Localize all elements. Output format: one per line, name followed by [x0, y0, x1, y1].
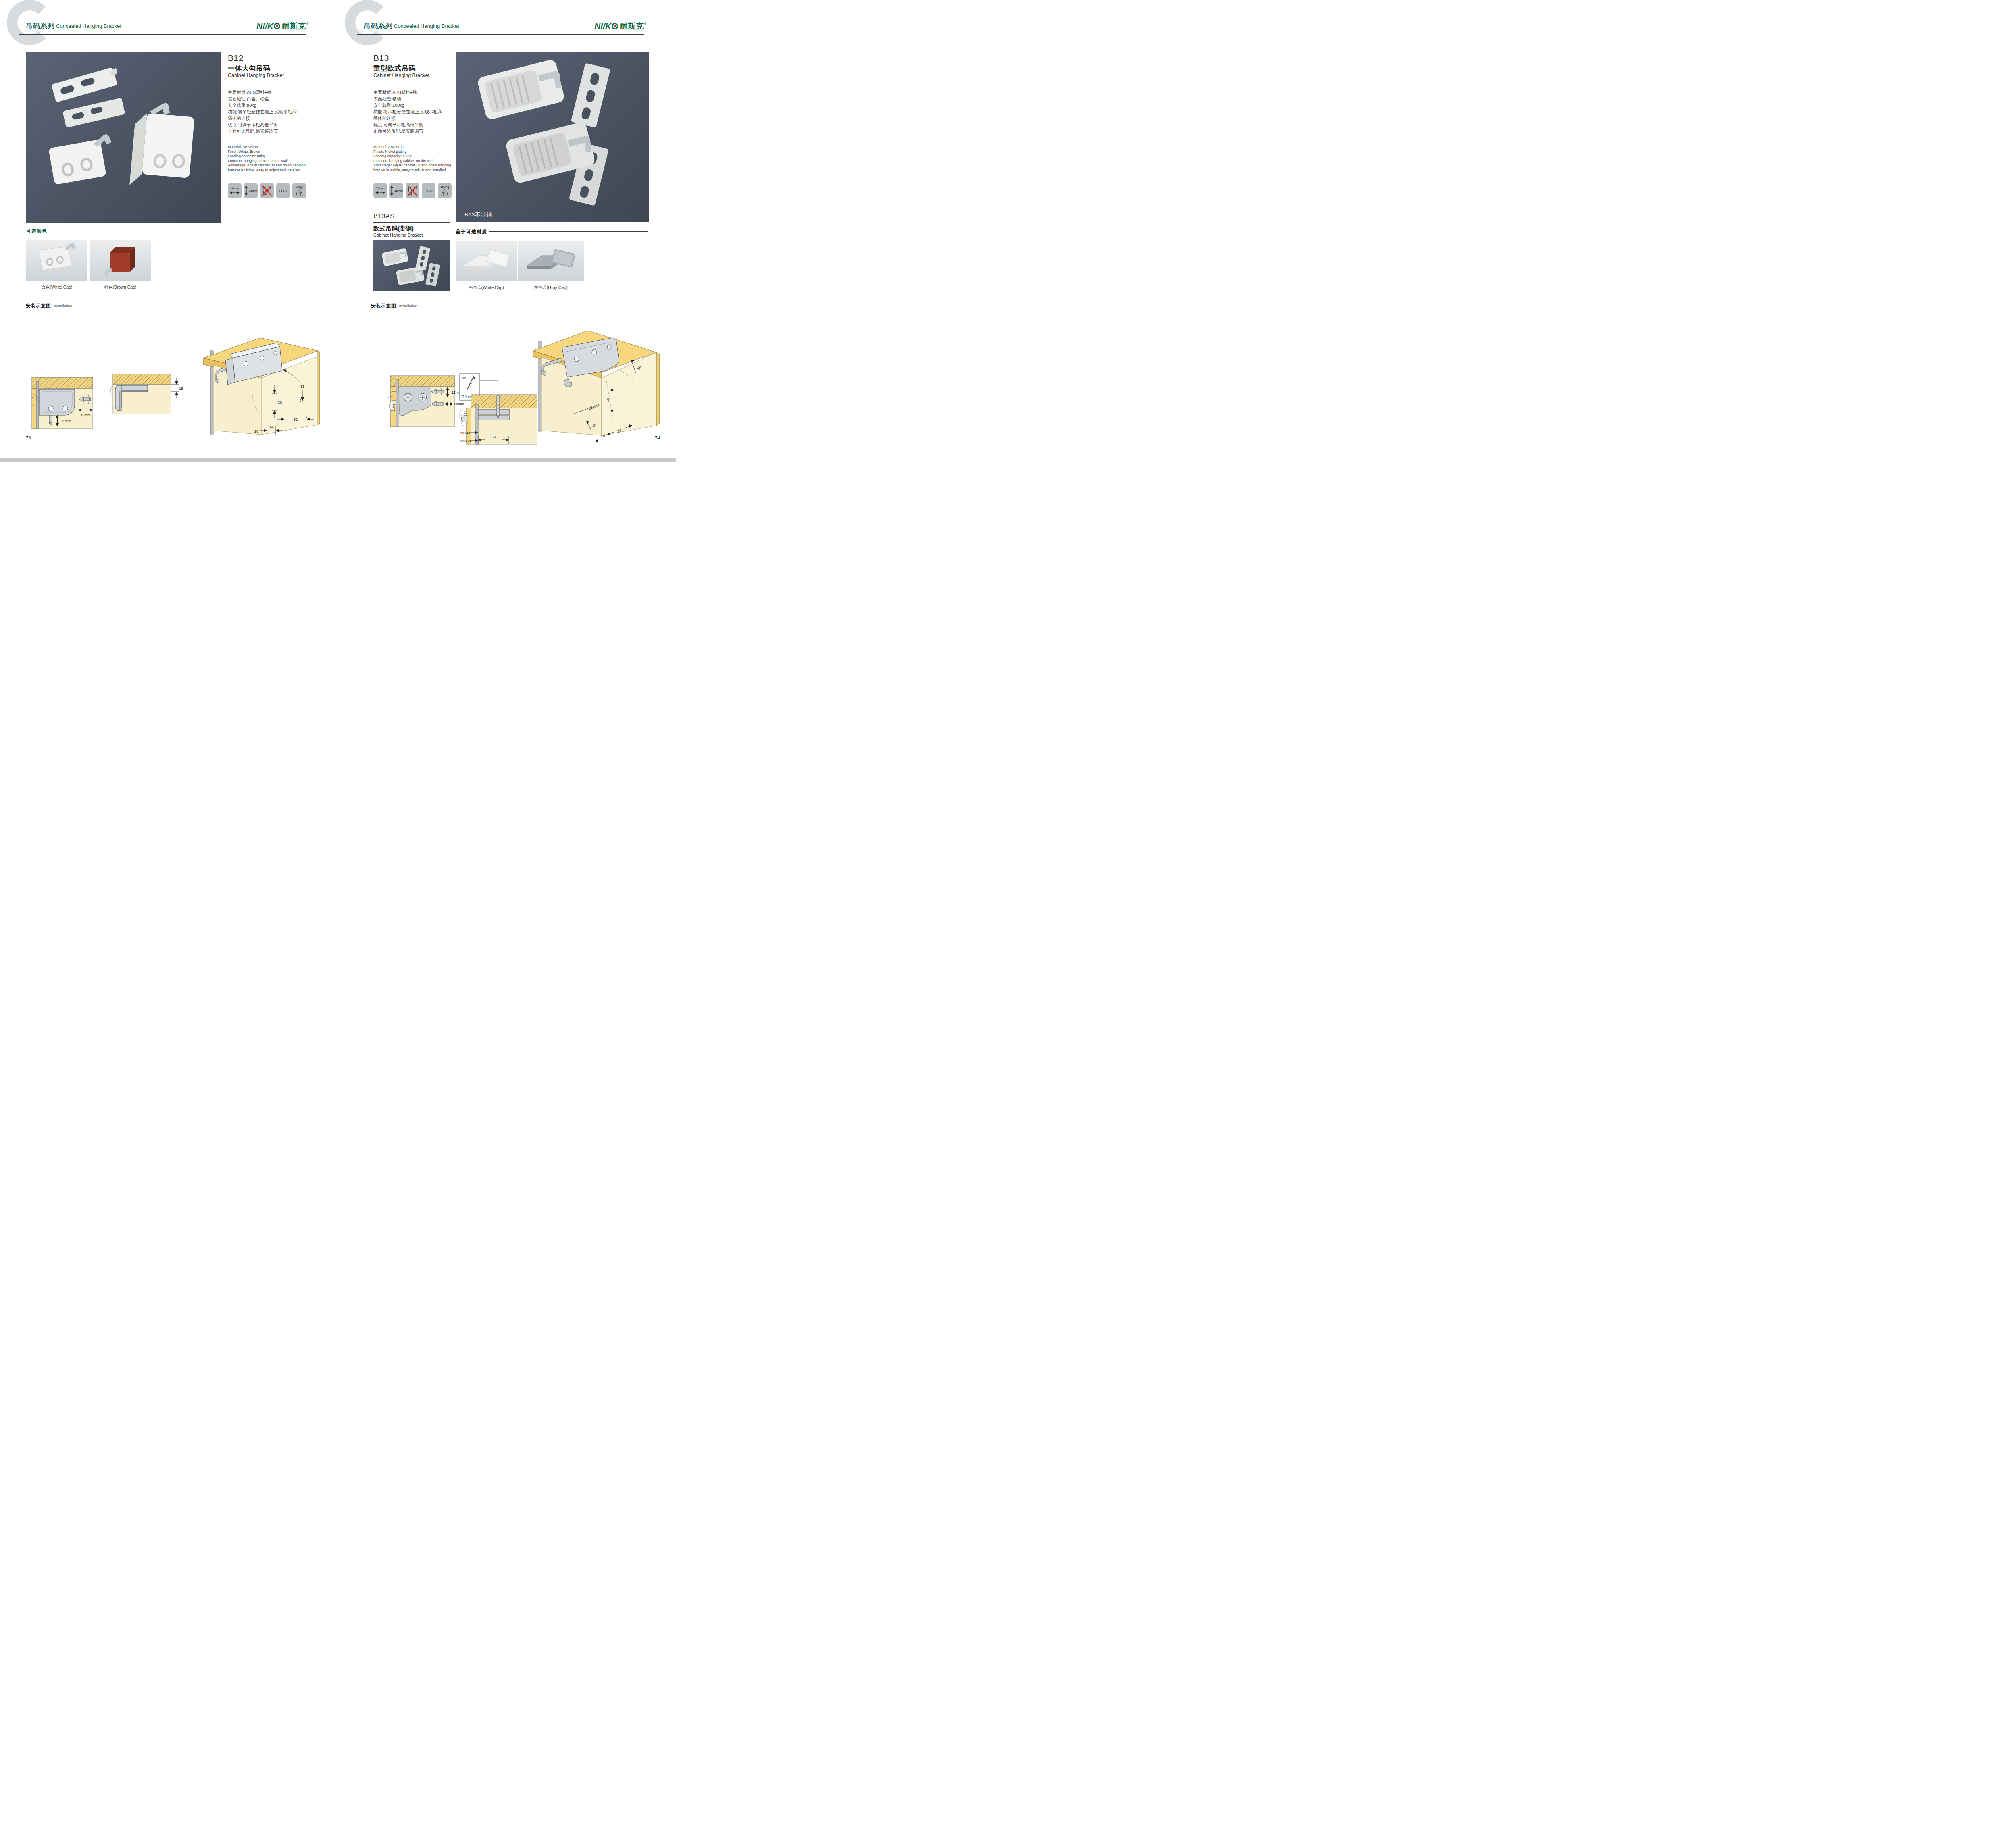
install-diagram-b12-section: 16mm 15mm	[31, 369, 107, 430]
sub-product-name-en: Cabinet Hanging Brcaket	[373, 233, 423, 237]
logo-cn: 耐斯克	[282, 21, 306, 31]
spec-line: 正面可见吊码,易安装调节	[228, 128, 297, 134]
registered-mark: ®	[306, 22, 308, 25]
dim-label: 18	[179, 387, 183, 391]
colors-section-title: 可选颜色	[26, 228, 47, 235]
spec-line: 功能:将吊柜悬挂在墙上,实现吊柜和	[373, 108, 442, 115]
product-photo-b12	[26, 52, 221, 223]
specs-en: Material: ABS+iron Finish: Nickel platin…	[373, 145, 451, 173]
no-drill-icon	[262, 185, 272, 196]
spec-line: Loading capacity: 80kg	[228, 154, 306, 159]
header-divider	[391, 22, 391, 29]
product-name-cn: 一体大勾吊码	[228, 64, 270, 73]
logo-red-dot	[276, 25, 278, 27]
page-left: 吊码系列 Concealed Hanging Bracket NI/K 耐斯克 …	[0, 0, 338, 462]
width-arrow-icon	[229, 191, 240, 195]
installation-title-en: Installation	[399, 304, 417, 308]
dim-label: 32	[294, 418, 298, 422]
spec-line: 功能:将吊柜悬挂在墙上,实现吊柜和	[228, 108, 297, 115]
spec-line: 表面处理:白色、棕色	[228, 96, 297, 102]
height-arrow-icon	[390, 185, 394, 196]
photo-label-b13: B13不带销	[464, 211, 492, 218]
swatch-white-cap	[26, 240, 87, 281]
feature-icons: 16mm 15mm LGA 8	[228, 183, 306, 198]
catalog-spread: 吊码系列 Concealed Hanging Bracket NI/K 耐斯克 …	[0, 0, 676, 462]
feature-icons: 20mm 15mm LGA 1	[373, 183, 452, 198]
caption-white-cover: 白色盖(White Cap)	[456, 285, 517, 291]
sub-product-rule	[373, 222, 450, 223]
b13-photo-illustration	[456, 52, 649, 222]
dim-label: MIN.15	[460, 431, 470, 435]
installation-title-cn: 安装示意图	[26, 303, 51, 308]
no-drill-icon	[408, 185, 417, 196]
icon-tile-no-drill	[260, 183, 274, 198]
lga-label: LGA	[279, 189, 287, 193]
icon-tile-cert: LGA	[276, 183, 290, 198]
swatch-gray-cover	[518, 241, 584, 281]
installation-title-cn: 安装示意图	[371, 303, 396, 308]
sub-product-name-cn: 欧式吊码(带销)	[373, 225, 414, 233]
section-divider	[357, 297, 648, 297]
height-arrow-icon	[244, 185, 248, 196]
icon-tile-height: 15mm	[244, 183, 258, 198]
height-label: 15mm	[249, 189, 257, 193]
dim-label: 16mm	[80, 413, 90, 417]
icon-tile-height: 15mm	[389, 183, 403, 198]
series-title-en: Concealed Hanging Bracket	[56, 23, 121, 29]
install-diagram-b13-perspective: 16 40 RMAX4 19 18 32	[527, 327, 660, 446]
header-rule	[19, 34, 306, 35]
spec-line: 墙体的连接	[373, 115, 442, 121]
brand-logo: NI/K 耐斯克 ®	[594, 21, 646, 31]
spec-line: bracket is visible, easy to adjust and i…	[373, 168, 451, 173]
spec-line: 正面可见吊码,易安装调节	[373, 128, 442, 134]
white-cap-illustration	[26, 240, 87, 281]
weight-icon	[440, 189, 449, 196]
dim-label: 33	[300, 385, 304, 389]
spec-line: 表面处理:镀镍	[373, 96, 442, 102]
spec-line: Material: ABS+iron	[228, 145, 306, 150]
section-divider	[17, 297, 306, 297]
header-divider	[53, 22, 53, 29]
dim-label: 30	[278, 401, 282, 405]
spec-line: Advantage: Adjust cabinet up and down ha…	[373, 163, 451, 168]
dim-label: 58	[492, 435, 496, 439]
logo-cn: 耐斯克	[620, 21, 644, 31]
product-name-en: Cabinet Hanging Bracket	[373, 73, 429, 78]
spec-line: 安全载重:100kg	[373, 102, 442, 108]
installation-title-en: Installation	[54, 304, 72, 308]
registered-mark: ®	[644, 22, 646, 25]
logo-wordmark: NI/K	[256, 21, 273, 31]
product-photo-b13: B13不带销	[456, 52, 649, 222]
header-rule	[357, 34, 644, 35]
product-code: B12	[228, 53, 244, 63]
caps-section-line	[489, 231, 648, 232]
spec-line: Advantage: Adjust cabinet up and down ha…	[228, 163, 306, 168]
b12-photo-illustration	[26, 52, 221, 223]
product-photo-b13as	[373, 240, 450, 291]
load-label: 80Kg	[296, 185, 303, 189]
icon-tile-width: 16mm	[228, 183, 242, 198]
specs-cn: 主要材质:ABS塑料+铁 表面处理:白色、棕色 安全载重:80kg 功能:将吊柜…	[228, 89, 297, 134]
width-label: 16mm	[231, 187, 239, 190]
icon-tile-load: 80Kg	[292, 183, 306, 198]
logo-o-icon	[274, 23, 280, 29]
icon-tile-load: 100Kg	[438, 183, 452, 198]
page-number: 73	[26, 435, 31, 441]
series-title-cn: 吊码系列	[26, 21, 55, 31]
spec-line: 优点:可调节吊柜高低平衡	[373, 121, 442, 128]
caption-white-cap: 白色(White Cap)	[26, 285, 87, 290]
swatch-white-cover	[456, 241, 517, 281]
gray-cover-illustration	[518, 241, 584, 281]
spec-line: Finish:White, Brown	[228, 150, 306, 154]
weight-icon	[295, 189, 304, 196]
dim-label: 15mm	[61, 419, 71, 423]
product-code: B13	[373, 53, 389, 63]
series-title-cn: 吊码系列	[364, 21, 393, 31]
load-label: 100Kg	[440, 185, 449, 189]
caps-section-title: 盖子可选材质	[456, 229, 487, 235]
logo-wordmark: NI/K	[594, 21, 611, 31]
colors-section-line	[51, 231, 151, 231]
spec-line: Material: ABS+iron	[373, 145, 451, 150]
spec-line: 优点:可调节吊柜高低平衡	[228, 121, 297, 128]
spec-line: 主要材质:ABS塑料+铁	[228, 89, 297, 96]
page-number: 74	[655, 435, 660, 441]
icon-tile-no-drill	[406, 183, 419, 198]
product-name-cn: 重型欧式吊码	[373, 64, 416, 73]
spec-line: 墙体的连接	[228, 115, 297, 121]
installation-title: 安装示意图Installation	[371, 302, 417, 309]
icon-tile-width: 20mm	[373, 183, 387, 198]
logo-red-dot	[614, 25, 616, 27]
dim-label: 20	[254, 429, 258, 433]
brand-logo: NI/K 耐斯克 ®	[256, 21, 308, 31]
dim-label: 2x	[462, 376, 466, 380]
lga-label: LGA	[425, 189, 433, 193]
series-title-en: Concealed Hanging Bracket	[394, 23, 459, 29]
spec-line: bracket is visible, easy to adjust and i…	[228, 168, 306, 173]
sub-product-code: B13AS	[373, 213, 394, 220]
spec-line: Finish: Nickel plating	[373, 150, 451, 154]
width-label: 20mm	[376, 187, 385, 190]
icon-tile-cert: LGA	[422, 183, 435, 198]
dim-label: MAX.35	[460, 439, 471, 443]
b13as-photo-illustration	[373, 240, 450, 291]
page-right: 吊码系列 Concealed Hanging Bracket NI/K 耐斯克 …	[338, 0, 676, 462]
install-diagram-b12-side: 18	[110, 370, 184, 416]
spec-line: Function: hanging cabinet on the wall	[228, 159, 306, 164]
install-diagram-b12-perspective: 33 30 32 20 14	[201, 333, 320, 436]
logo-o-icon	[612, 23, 618, 29]
installation-title: 安装示意图Installation	[26, 302, 72, 309]
specs-cn: 主要材质:ABS塑料+铁 表面处理:镀镍 安全载重:100kg 功能:将吊柜悬挂…	[373, 89, 442, 134]
caption-gray-cover: 灰色盖(Gray Cap)	[518, 285, 584, 291]
spec-line: Loading capacity: 100kg	[373, 154, 451, 159]
white-cover-illustration	[456, 241, 517, 281]
swatch-brown-cap	[90, 240, 151, 281]
brown-cap-illustration	[90, 240, 151, 281]
spec-line: 主要材质:ABS塑料+铁	[373, 89, 442, 96]
specs-en: Material: ABS+iron Finish:White, Brown L…	[228, 145, 306, 173]
page-bottom-edge	[0, 458, 676, 462]
install-diagram-b13-section: 15mm 20mm	[386, 364, 465, 430]
height-label: 15mm	[394, 189, 403, 193]
caption-brown-cap: 棕色(Brown Cap)	[90, 285, 151, 290]
spec-line: Function: hanging cabinet on the wall	[373, 159, 451, 164]
spec-line: 安全载重:80kg	[228, 102, 297, 108]
dim-label: 14	[269, 425, 273, 429]
product-name-en: Cabinet Hanging Bracket	[228, 73, 284, 78]
dim-label: 40	[606, 398, 610, 402]
width-arrow-icon	[375, 191, 385, 195]
